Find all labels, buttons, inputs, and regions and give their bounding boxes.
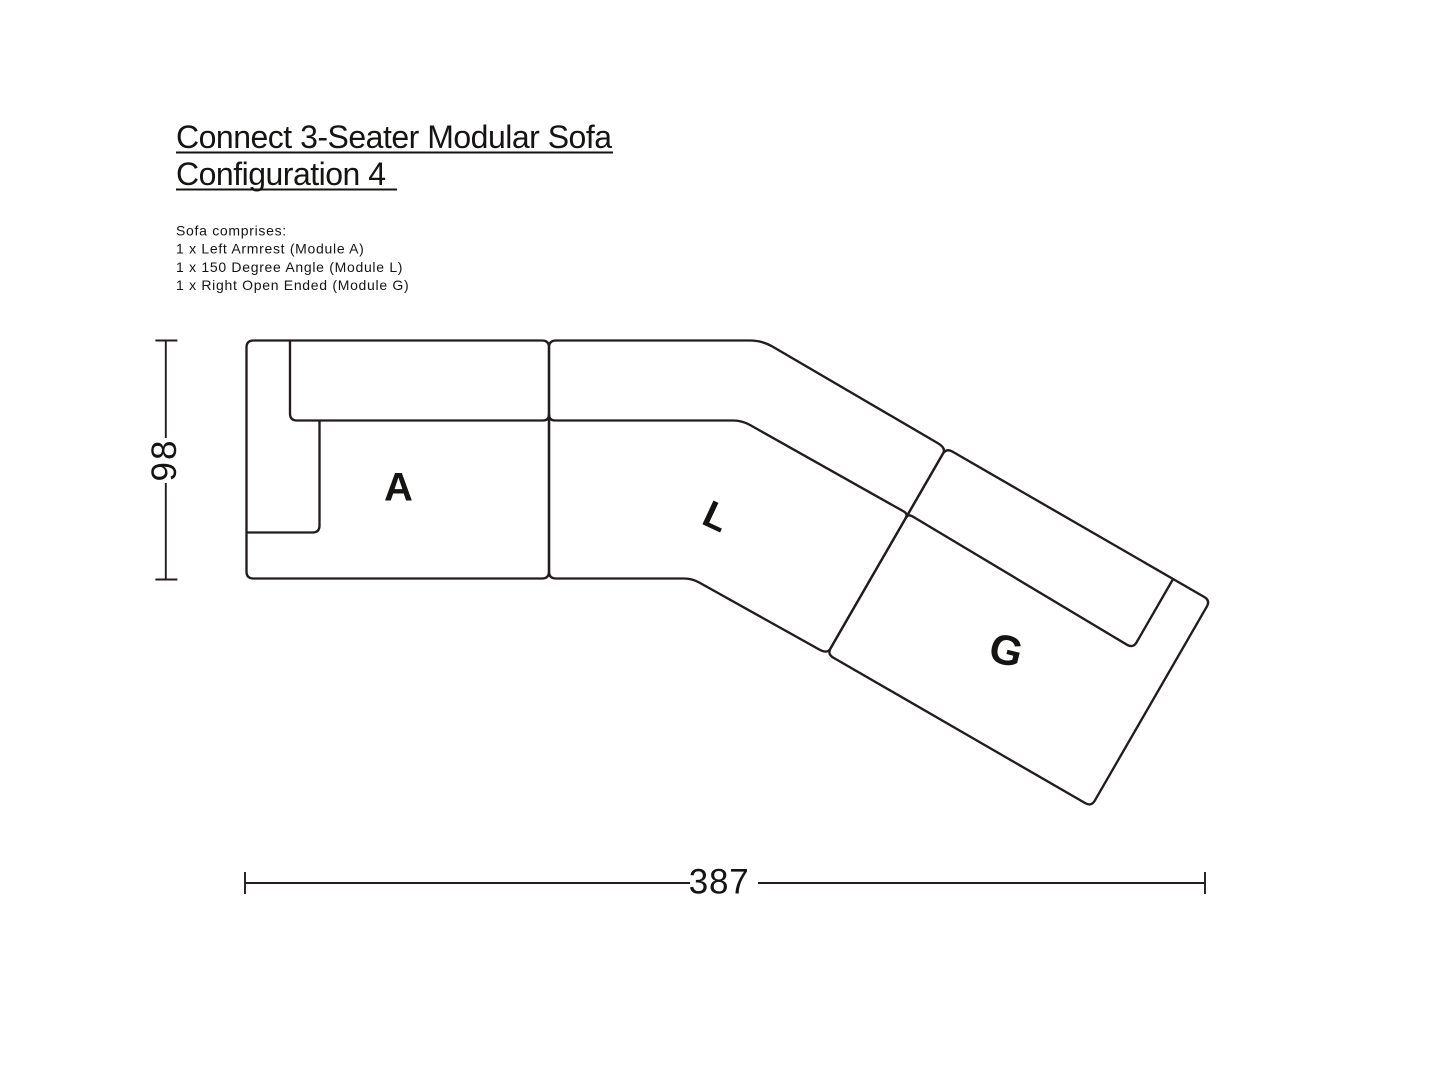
svg-text:1 x Right Open Ended (Module G: 1 x Right Open Ended (Module G) (176, 277, 409, 293)
svg-text:Sofa comprises:: Sofa comprises: (176, 222, 287, 238)
svg-text:1 x Left Armrest (Module A): 1 x Left Armrest (Module A) (176, 241, 365, 257)
svg-text:Connect 3-Seater Modular Sofa: Connect 3-Seater Modular Sofa (176, 119, 612, 155)
svg-text:1 x 150 Degree Angle (Module L: 1 x 150 Degree Angle (Module L) (176, 259, 403, 275)
svg-text:A: A (384, 465, 413, 509)
svg-text:G: G (985, 623, 1028, 677)
svg-text:L: L (696, 493, 735, 541)
svg-text:387: 387 (689, 863, 750, 902)
svg-text:Configuration 4: Configuration 4 (176, 156, 386, 192)
svg-text:98: 98 (145, 439, 184, 482)
